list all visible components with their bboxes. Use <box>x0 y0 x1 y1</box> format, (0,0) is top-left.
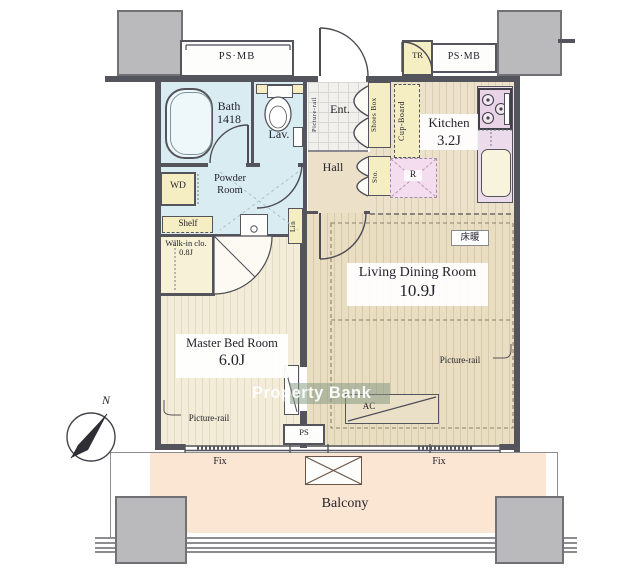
shoes-box-label: Shoes Box <box>371 86 379 144</box>
kitchen-name: Kitchen <box>428 115 469 130</box>
walk-in-name: Walk-in clo. <box>165 239 206 248</box>
fix-right-label: Fix <box>424 456 454 467</box>
washer-dryer-label: WD <box>165 181 191 192</box>
walk-in-closet-label: Walk-in clo. 0.8J <box>157 239 215 258</box>
floor-plan: PS·MB TR PS·MB Bath 1418 Lav. Ent. Pictu… <box>0 0 640 569</box>
ps-mb-left-label: PS·MB <box>180 51 294 63</box>
cup-board-label: Cup-Board <box>398 88 407 154</box>
floor-heating-label: 床暖 <box>451 230 489 246</box>
powder-room-label: Powder Room <box>205 173 255 197</box>
storage-label: Sto. <box>372 160 380 192</box>
shelf-label: Shelf <box>168 218 208 228</box>
lavatory-label: Lav. <box>256 128 302 141</box>
picture-rail-master-label: Picture-rail <box>177 413 241 423</box>
linen-label: Lin <box>290 213 298 239</box>
walk-in-size: 0.8J <box>179 248 193 257</box>
master-name: Master Bed Room <box>186 336 278 350</box>
fix-left-label: Fix <box>205 456 235 467</box>
hall-label: Hall <box>313 161 353 174</box>
refrigerator-label: R <box>404 170 422 181</box>
compass-north-label: N <box>98 394 114 407</box>
master-size: 6.0J <box>219 352 245 369</box>
trunk-room-label: TR <box>402 51 433 61</box>
living-name: Living Dining Room <box>359 265 476 280</box>
powder-line2: Room <box>217 185 243 196</box>
balcony-label: Balcony <box>303 496 387 512</box>
bath-size: 1418 <box>217 112 241 126</box>
master-bedroom-label: Master Bed Room 6.0J <box>176 334 288 378</box>
ps-mb-right-label: PS·MB <box>431 51 497 62</box>
powder-line1: Powder <box>214 173 246 184</box>
kitchen-label: Kitchen 3.2J <box>420 114 478 150</box>
entrance-label: Ent. <box>322 103 358 116</box>
picture-rail-entrance-label: Picture-rail <box>311 84 318 144</box>
pipe-space-label: PS <box>283 428 325 438</box>
kitchen-size: 3.2J <box>437 133 461 149</box>
bath-name: Bath <box>218 99 241 113</box>
living-dining-label: Living Dining Room 10.9J <box>347 263 488 306</box>
floorplan-graphics <box>0 0 640 569</box>
watermark-text: Property Bank <box>252 384 392 402</box>
living-size: 10.9J <box>399 281 435 300</box>
picture-rail-living-label: Picture-rail <box>428 355 492 365</box>
bath-label: Bath 1418 <box>205 100 253 127</box>
